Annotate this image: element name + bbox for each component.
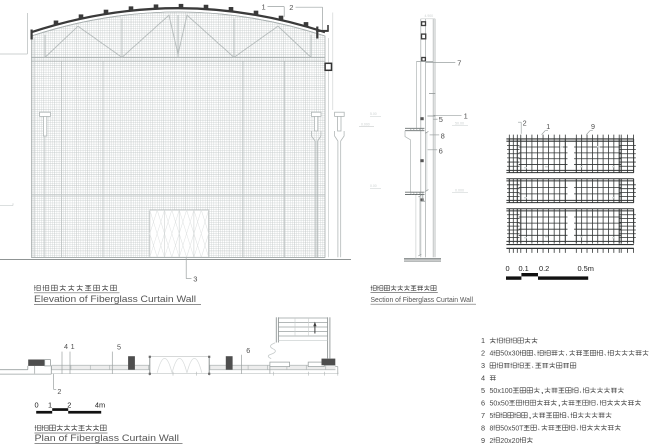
svg-text:2: 2 xyxy=(481,349,485,358)
svg-text:1: 1 xyxy=(481,336,485,345)
svg-text:7: 7 xyxy=(481,411,485,420)
svg-text:2: 2 xyxy=(289,3,293,12)
svg-text:5: 5 xyxy=(117,342,121,351)
svg-text:5: 5 xyxy=(490,413,494,420)
svg-text:,: , xyxy=(557,400,561,407)
svg-text:Section of Fiberglass Curtain: Section of Fiberglass Curtain Wall xyxy=(371,297,474,304)
svg-text:2: 2 xyxy=(490,438,494,445)
svg-text:0: 0 xyxy=(34,400,38,409)
svg-text:7: 7 xyxy=(457,59,461,68)
svg-text:8: 8 xyxy=(490,425,494,432)
svg-text:Elevation of Fiberglass Curtai: Elevation of Fiberglass Curtain Wall xyxy=(34,294,196,304)
svg-text:6: 6 xyxy=(439,147,443,156)
svg-text:0.5m: 0.5m xyxy=(578,264,594,273)
svg-text:50.00: 50.00 xyxy=(455,121,464,125)
svg-text:5: 5 xyxy=(439,115,443,124)
svg-text:4: 4 xyxy=(481,374,485,383)
svg-text:1: 1 xyxy=(71,342,75,351)
svg-text:1: 1 xyxy=(546,122,550,131)
svg-text:2: 2 xyxy=(523,118,527,127)
svg-text:0: 0 xyxy=(506,264,510,273)
svg-text:50x100: 50x100 xyxy=(490,388,513,395)
svg-text:5.00: 5.00 xyxy=(370,112,377,116)
svg-text:2: 2 xyxy=(57,387,61,396)
svg-text:6: 6 xyxy=(246,346,250,355)
svg-text:4: 4 xyxy=(64,342,68,351)
svg-text:8: 8 xyxy=(441,132,445,141)
svg-text:,: , xyxy=(540,388,544,395)
svg-text:1: 1 xyxy=(464,111,468,120)
svg-text:50x50: 50x50 xyxy=(490,400,509,407)
svg-text:6: 6 xyxy=(481,398,485,407)
svg-text:0.1: 0.1 xyxy=(519,264,529,273)
svg-text:4: 4 xyxy=(490,351,494,358)
svg-text:Plan of Fiberglass Curtain Wal: Plan of Fiberglass Curtain Wall xyxy=(35,433,180,443)
svg-text:8: 8 xyxy=(481,423,485,432)
svg-text:0.2: 0.2 xyxy=(539,264,549,273)
svg-text:50x50T: 50x50T xyxy=(500,425,524,432)
svg-text:9: 9 xyxy=(591,122,595,131)
svg-text:20x20: 20x20 xyxy=(500,438,519,445)
svg-text:4m: 4m xyxy=(95,400,105,409)
svg-text:0.000: 0.000 xyxy=(361,122,370,126)
svg-text:3: 3 xyxy=(193,275,197,284)
svg-text:0.00: 0.00 xyxy=(370,184,377,188)
svg-text:,: , xyxy=(528,413,532,420)
svg-text:4.900: 4.900 xyxy=(425,14,434,18)
svg-text:3: 3 xyxy=(481,361,485,370)
svg-text:1: 1 xyxy=(48,400,52,409)
svg-text:9: 9 xyxy=(481,436,485,445)
svg-text:0.000: 0.000 xyxy=(455,188,464,192)
svg-text:50x30: 50x30 xyxy=(500,351,519,358)
svg-text:5: 5 xyxy=(481,386,485,395)
svg-text:2: 2 xyxy=(67,400,71,409)
svg-text:1: 1 xyxy=(262,3,266,12)
